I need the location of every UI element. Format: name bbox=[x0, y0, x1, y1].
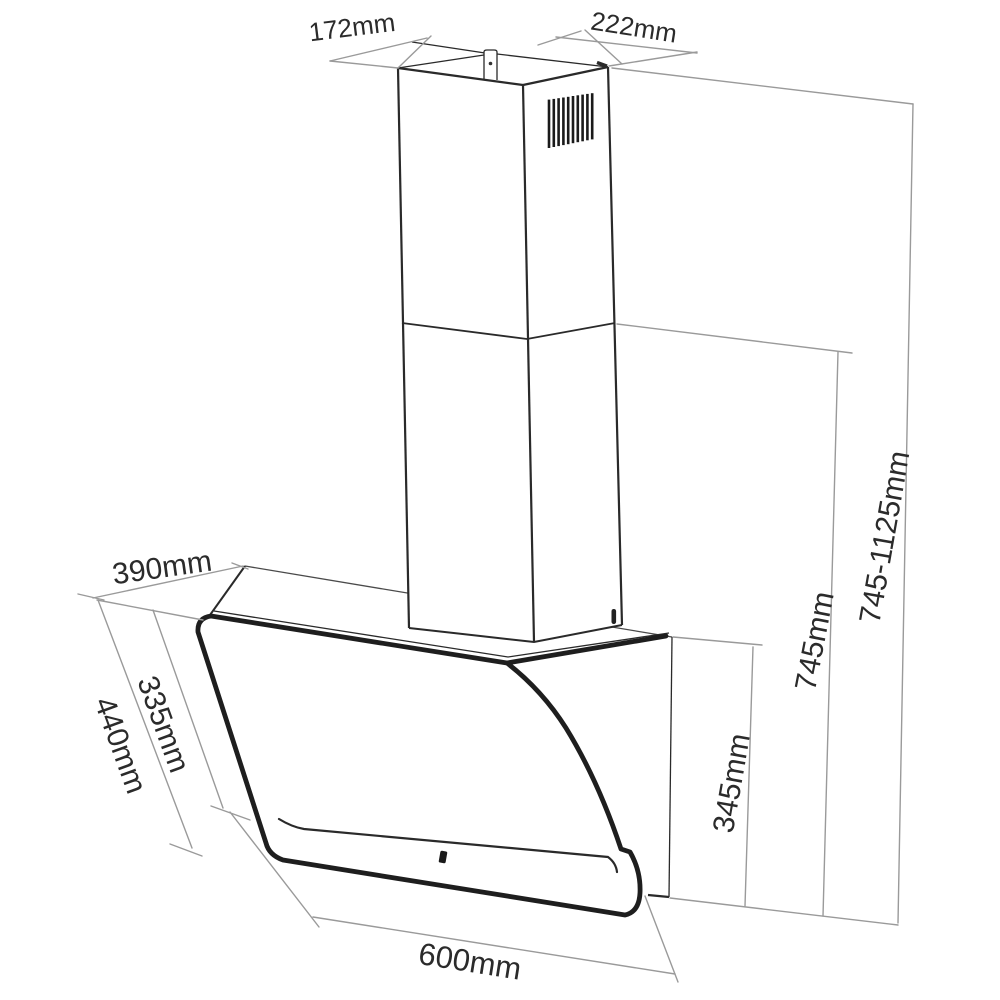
dim-440-tick-bottom bbox=[170, 844, 202, 856]
dim-172-extension-left bbox=[330, 61, 398, 68]
dim-seam-extension bbox=[617, 324, 852, 353]
dim-total-top-extension bbox=[612, 68, 913, 104]
dimension-diagram-page: 172mm 222mm 390mm 335mm 440mm 600mm 345m… bbox=[0, 0, 1000, 1000]
dim-222-tick-left bbox=[538, 31, 581, 45]
chimney bbox=[398, 42, 622, 642]
label-hood-width: 600mm bbox=[416, 936, 524, 987]
dim-390-extension bbox=[97, 600, 203, 620]
label-chimney-min-height: 745mm bbox=[789, 589, 840, 694]
cooker-hood-dimension-drawing: 172mm 222mm 390mm 335mm 440mm 600mm 345m… bbox=[0, 0, 1000, 1000]
dim-hoodtop-extension bbox=[673, 637, 762, 645]
label-chimney-depth: 172mm bbox=[307, 7, 397, 47]
dim-600-extension-right bbox=[645, 896, 678, 982]
label-total-height-range: 745-1125mm bbox=[854, 448, 917, 626]
dim-bottom-extension bbox=[670, 898, 898, 925]
bracket-screw-hole bbox=[489, 62, 493, 66]
label-hood-top-depth: 390mm bbox=[110, 545, 214, 592]
chimney-slot-detail bbox=[612, 609, 617, 624]
